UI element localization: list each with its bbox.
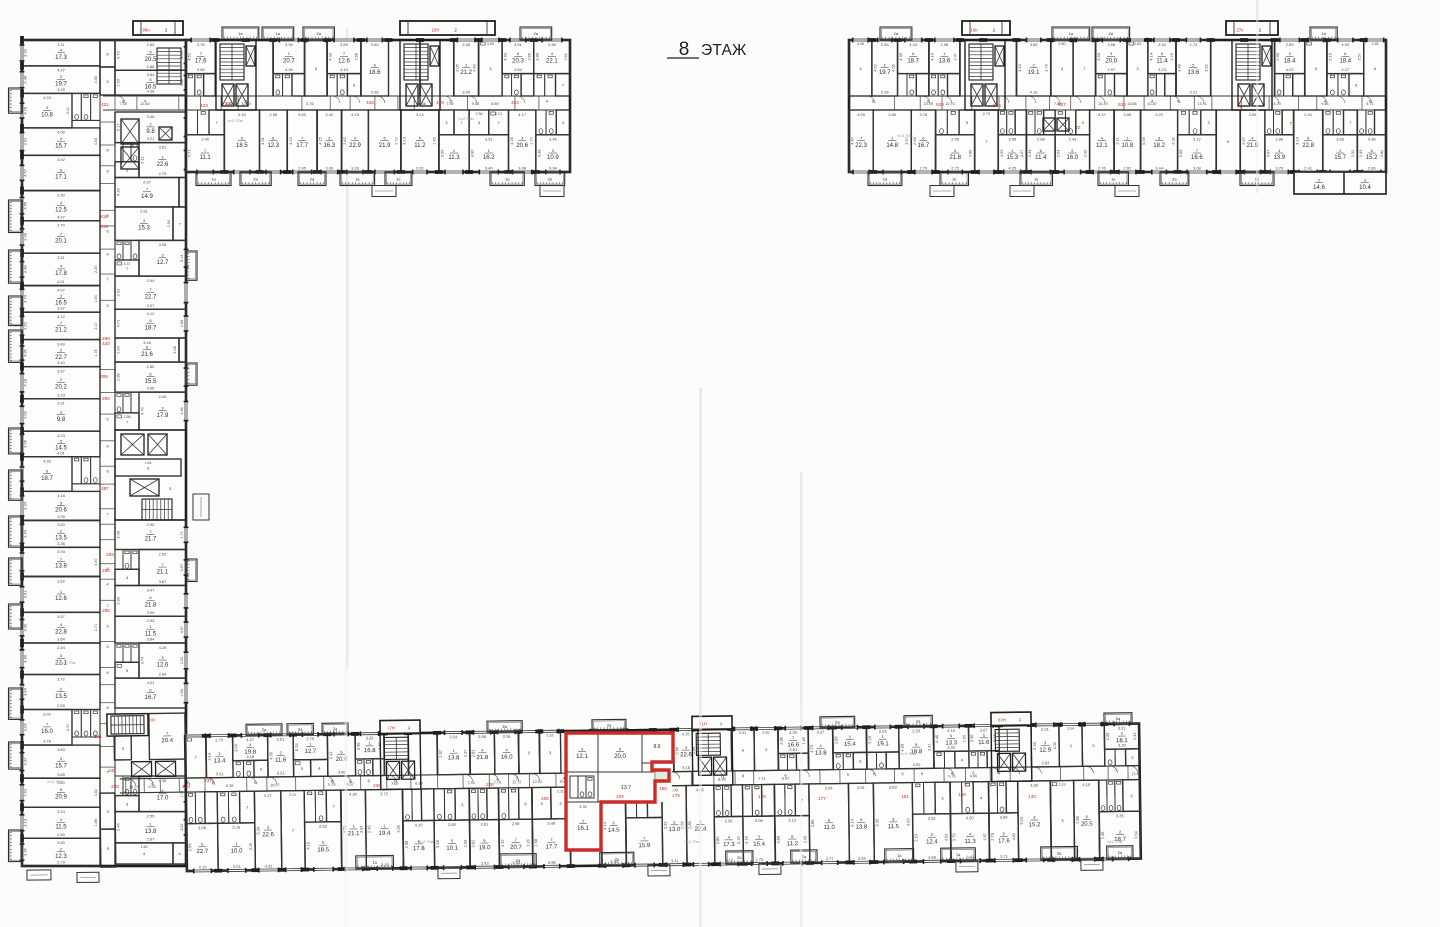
svg-text:3.54: 3.54 — [449, 734, 458, 739]
svg-text:77Н: 77Н — [387, 725, 395, 730]
svg-text:4.80: 4.80 — [472, 64, 476, 71]
svg-text:4.12: 4.12 — [500, 839, 505, 848]
svg-text:3.18: 3.18 — [143, 340, 152, 345]
svg-text:13.66: 13.66 — [1127, 102, 1137, 106]
svg-text:288: 288 — [102, 336, 110, 341]
svg-text:5.15: 5.15 — [1019, 816, 1024, 825]
svg-text:3.50: 3.50 — [57, 840, 66, 845]
svg-text:2.98: 2.98 — [371, 90, 380, 95]
svg-text:3.40: 3.40 — [485, 166, 494, 171]
svg-text:4.67: 4.67 — [1266, 149, 1271, 158]
svg-text:3.23: 3.23 — [57, 392, 66, 397]
svg-text:21.7: 21.7 — [145, 537, 157, 543]
svg-text:7: 7 — [562, 84, 564, 88]
svg-text:4.96: 4.96 — [180, 407, 184, 414]
svg-text:4.06: 4.06 — [173, 346, 177, 353]
svg-text:2.47: 2.47 — [66, 724, 70, 731]
svg-text:70: 70 — [1237, 104, 1243, 109]
svg-text:5: 5 — [106, 418, 108, 422]
svg-text:11.6: 11.6 — [978, 740, 990, 746]
svg-text:3.49: 3.49 — [57, 341, 66, 346]
svg-text:3.43: 3.43 — [238, 112, 247, 117]
svg-text:4.38: 4.38 — [1368, 137, 1377, 142]
svg-text:3.46: 3.46 — [147, 114, 156, 119]
svg-text:12.52: 12.52 — [533, 780, 543, 784]
svg-text:17.0: 17.0 — [157, 796, 169, 802]
svg-text:2.46: 2.46 — [201, 137, 210, 142]
svg-text:11.2: 11.2 — [787, 841, 799, 847]
svg-text:3.59: 3.59 — [1249, 112, 1258, 117]
svg-text:10.8: 10.8 — [1122, 143, 1134, 149]
svg-text:3.38: 3.38 — [1030, 783, 1039, 788]
svg-text:3.84: 3.84 — [147, 637, 156, 642]
svg-text:3.08: 3.08 — [518, 166, 527, 171]
svg-text:3.71: 3.71 — [1000, 854, 1009, 859]
svg-text:3.08: 3.08 — [1193, 166, 1202, 171]
svg-text:10.8: 10.8 — [41, 113, 53, 119]
svg-text:10.29: 10.29 — [1098, 102, 1108, 106]
svg-text:3.57: 3.57 — [1358, 53, 1362, 60]
svg-text:21.9: 21.9 — [379, 143, 391, 149]
svg-text:3.07: 3.07 — [147, 303, 156, 308]
svg-text:16н: 16н — [971, 28, 979, 33]
svg-text:3.11: 3.11 — [57, 42, 65, 47]
svg-text:2.80: 2.80 — [687, 820, 692, 829]
svg-text:422: 422 — [225, 101, 233, 106]
svg-text:6.39: 6.39 — [226, 784, 233, 788]
svg-text:22.9: 22.9 — [349, 143, 361, 149]
svg-text:12.7: 12.7 — [305, 749, 317, 755]
svg-text:4.87: 4.87 — [94, 558, 98, 565]
svg-text:3.09: 3.09 — [116, 530, 121, 539]
svg-text:6: 6 — [106, 671, 108, 675]
svg-text:5: 5 — [106, 645, 108, 649]
svg-text:2.54: 2.54 — [1067, 727, 1074, 731]
svg-text:4.95: 4.95 — [268, 751, 273, 760]
svg-text:2а: 2а — [1109, 31, 1114, 36]
svg-text:3.44: 3.44 — [1027, 149, 1032, 158]
svg-text:16.7: 16.7 — [918, 143, 930, 149]
svg-text:9.58: 9.58 — [472, 102, 479, 106]
svg-text:4: 4 — [107, 810, 109, 814]
svg-text:426: 426 — [436, 100, 444, 105]
svg-text:15.3: 15.3 — [138, 226, 150, 232]
svg-text:4.17: 4.17 — [264, 793, 273, 798]
svg-text:3.02: 3.02 — [43, 711, 52, 716]
svg-text:2.37: 2.37 — [464, 750, 468, 757]
svg-text:6: 6 — [524, 802, 526, 806]
svg-text:2.02: 2.02 — [180, 657, 184, 664]
svg-text:5: 5 — [106, 625, 108, 629]
svg-text:4: 4 — [980, 796, 982, 800]
svg-text:22.8: 22.8 — [1302, 143, 1314, 149]
svg-text:2.88: 2.88 — [147, 64, 156, 69]
svg-text:290: 290 — [102, 396, 110, 401]
svg-text:8.9: 8.9 — [654, 744, 661, 750]
svg-text:2.52: 2.52 — [928, 816, 937, 821]
svg-text:4.12: 4.12 — [147, 311, 156, 316]
svg-text:4: 4 — [1151, 100, 1153, 104]
svg-text:4.15: 4.15 — [682, 731, 691, 736]
svg-text:6: 6 — [784, 774, 786, 778]
svg-text:2.96: 2.96 — [881, 90, 890, 95]
svg-text:2.80: 2.80 — [1059, 42, 1066, 46]
svg-text:10Н: 10Н — [432, 28, 440, 33]
svg-text:2.46: 2.46 — [116, 823, 121, 832]
svg-text:2.62: 2.62 — [1124, 166, 1133, 171]
svg-text:3.12: 3.12 — [1193, 137, 1202, 142]
svg-text:2.89: 2.89 — [116, 596, 121, 605]
svg-text:11.1: 11.1 — [199, 155, 211, 161]
svg-text:2.80: 2.80 — [147, 364, 156, 369]
svg-text:2.79: 2.79 — [215, 737, 224, 742]
svg-text:7: 7 — [292, 829, 294, 833]
svg-text:3.94: 3.94 — [825, 785, 834, 790]
svg-text:241: 241 — [94, 734, 102, 739]
svg-text:150: 150 — [958, 792, 966, 797]
svg-text:4: 4 — [260, 767, 262, 771]
svg-text:16.8: 16.8 — [364, 748, 376, 754]
svg-text:h=2.70м: h=2.70м — [418, 839, 433, 844]
svg-text:4.56: 4.56 — [891, 64, 895, 71]
svg-text:2.14: 2.14 — [289, 793, 296, 797]
svg-text:4.51: 4.51 — [187, 52, 192, 61]
svg-text:2.55: 2.55 — [147, 813, 156, 818]
svg-text:424: 424 — [511, 100, 519, 105]
svg-text:22.6: 22.6 — [157, 162, 169, 168]
svg-text:3.54: 3.54 — [147, 72, 156, 77]
svg-text:11.5: 11.5 — [888, 824, 900, 830]
svg-text:3: 3 — [489, 67, 491, 71]
svg-text:11.3: 11.3 — [448, 155, 460, 161]
svg-text:16.0: 16.0 — [41, 729, 53, 735]
svg-text:ЭТАЖ: ЭТАЖ — [701, 42, 747, 59]
svg-text:3: 3 — [1070, 744, 1072, 748]
svg-text:6: 6 — [921, 772, 923, 776]
svg-text:140: 140 — [1028, 794, 1036, 799]
svg-text:3.66: 3.66 — [1030, 42, 1039, 47]
svg-text:3.41: 3.41 — [671, 858, 680, 863]
svg-text:2.65: 2.65 — [147, 42, 156, 47]
svg-text:1.78: 1.78 — [94, 349, 98, 356]
svg-text:8: 8 — [742, 774, 744, 778]
svg-text:18.6: 18.6 — [369, 70, 381, 76]
svg-text:3.99: 3.99 — [1000, 815, 1009, 820]
svg-text:2.42: 2.42 — [1158, 42, 1167, 47]
svg-text:13.4: 13.4 — [214, 758, 226, 764]
svg-text:2а: 2а — [1172, 176, 1177, 181]
svg-text:3.23: 3.23 — [1158, 67, 1167, 72]
svg-text:4.79: 4.79 — [140, 406, 145, 415]
svg-text:4.15: 4.15 — [351, 112, 360, 117]
svg-text:2.52: 2.52 — [159, 551, 168, 556]
svg-text:3.76: 3.76 — [1275, 166, 1284, 171]
svg-text:4.28: 4.28 — [159, 645, 168, 650]
svg-text:4.02: 4.02 — [94, 789, 98, 796]
svg-text:5: 5 — [1092, 744, 1094, 748]
svg-text:7: 7 — [1083, 67, 1085, 71]
svg-text:3.14: 3.14 — [416, 112, 425, 117]
svg-text:12.1: 12.1 — [576, 754, 588, 760]
svg-text:528: 528 — [993, 103, 1001, 108]
svg-text:3.09: 3.09 — [325, 166, 334, 171]
svg-text:1.87: 1.87 — [983, 833, 987, 840]
svg-text:4.23: 4.23 — [57, 433, 66, 438]
svg-text:3.35: 3.35 — [1116, 813, 1125, 818]
svg-text:4.00: 4.00 — [94, 76, 98, 83]
svg-text:3.01: 3.01 — [233, 864, 242, 869]
svg-text:3.45: 3.45 — [549, 137, 558, 142]
svg-text:240: 240 — [108, 768, 116, 773]
svg-text:19.7: 19.7 — [879, 70, 891, 76]
svg-text:1а: 1а — [1321, 31, 1326, 36]
svg-text:1а: 1а — [1069, 31, 1074, 36]
svg-text:2: 2 — [454, 28, 457, 33]
svg-text:4.02: 4.02 — [1286, 67, 1295, 72]
svg-text:5: 5 — [847, 773, 849, 777]
svg-text:3.19: 3.19 — [1017, 63, 1022, 72]
svg-text:2.67: 2.67 — [1241, 136, 1246, 145]
svg-text:3.30: 3.30 — [579, 805, 586, 809]
svg-text:1е: 1е — [1034, 176, 1039, 181]
svg-text:3.37: 3.37 — [124, 262, 131, 266]
svg-text:20.3: 20.3 — [512, 59, 524, 65]
svg-text:4.45: 4.45 — [934, 734, 939, 743]
svg-text:17.3: 17.3 — [55, 55, 67, 61]
svg-text:286: 286 — [102, 568, 110, 573]
svg-text:7: 7 — [516, 777, 518, 781]
svg-text:2.50: 2.50 — [57, 832, 66, 837]
svg-text:20.6: 20.6 — [516, 143, 528, 149]
svg-text:3.11: 3.11 — [1115, 136, 1120, 144]
svg-text:14.6: 14.6 — [1313, 185, 1325, 191]
svg-text:3.29: 3.29 — [57, 87, 66, 92]
svg-text:13.6: 13.6 — [939, 59, 951, 65]
svg-text:5: 5 — [528, 751, 530, 755]
svg-text:1.86: 1.86 — [94, 819, 98, 826]
svg-text:4: 4 — [143, 852, 145, 856]
svg-text:2.95: 2.95 — [951, 137, 960, 142]
svg-text:4.52: 4.52 — [873, 63, 878, 72]
svg-text:7: 7 — [178, 223, 180, 227]
svg-text:9бн: 9бн — [142, 28, 150, 33]
svg-text:4.96: 4.96 — [898, 52, 903, 61]
svg-text:3.99: 3.99 — [57, 514, 66, 519]
svg-text:4.33: 4.33 — [43, 95, 52, 100]
svg-text:3.85: 3.85 — [57, 772, 66, 777]
svg-text:5.08: 5.08 — [1178, 149, 1183, 158]
svg-text:2.72: 2.72 — [951, 166, 960, 171]
svg-text:1.66: 1.66 — [180, 689, 184, 696]
svg-text:2.97: 2.97 — [143, 179, 152, 184]
svg-text:17.7: 17.7 — [296, 143, 308, 149]
svg-text:4.24: 4.24 — [909, 42, 918, 47]
svg-text:2.54: 2.54 — [57, 645, 66, 650]
svg-text:2.79: 2.79 — [920, 166, 929, 171]
svg-text:4.32: 4.32 — [1053, 742, 1057, 749]
svg-text:2.56: 2.56 — [763, 731, 770, 735]
svg-text:3.83: 3.83 — [57, 747, 66, 752]
svg-text:18.5: 18.5 — [236, 143, 248, 149]
svg-text:3.34: 3.34 — [549, 166, 558, 171]
svg-text:10.70: 10.70 — [945, 102, 955, 106]
svg-text:4.07: 4.07 — [57, 287, 66, 292]
svg-text:2.32: 2.32 — [546, 733, 553, 737]
svg-text:4.17: 4.17 — [518, 112, 527, 117]
svg-text:238: 238 — [182, 784, 190, 789]
svg-text:5: 5 — [126, 669, 128, 673]
svg-text:1а: 1а — [276, 31, 281, 36]
svg-text:11.0: 11.0 — [824, 825, 836, 831]
svg-text:22.7: 22.7 — [145, 294, 157, 300]
svg-text:3.19: 3.19 — [381, 862, 390, 867]
svg-text:2а: 2а — [253, 176, 258, 181]
svg-text:3.19: 3.19 — [249, 843, 253, 850]
svg-text:1.98: 1.98 — [1371, 42, 1378, 46]
svg-text:h=2.70м: h=2.70м — [227, 118, 242, 123]
svg-text:13.91: 13.91 — [1198, 102, 1208, 106]
svg-text:419: 419 — [100, 224, 108, 229]
svg-text:1а: 1а — [238, 31, 243, 36]
svg-text:2.98: 2.98 — [404, 840, 409, 849]
svg-text:2.85: 2.85 — [833, 735, 838, 744]
svg-text:3.94: 3.94 — [360, 826, 364, 833]
svg-text:285: 285 — [102, 608, 110, 613]
svg-text:3.16: 3.16 — [744, 835, 749, 844]
svg-text:3: 3 — [461, 803, 463, 807]
svg-text:4: 4 — [144, 100, 146, 104]
svg-text:1.94: 1.94 — [94, 295, 98, 302]
svg-text:2.11: 2.11 — [557, 789, 564, 793]
svg-text:3.72: 3.72 — [380, 791, 389, 796]
svg-text:12.1: 12.1 — [1096, 143, 1108, 149]
svg-text:2.86: 2.86 — [779, 736, 784, 745]
svg-text:13.6: 13.6 — [1188, 70, 1200, 76]
svg-text:3.06: 3.06 — [755, 818, 764, 823]
svg-text:14.5: 14.5 — [608, 828, 620, 834]
svg-text:2.56: 2.56 — [187, 843, 192, 852]
svg-text:13.8: 13.8 — [815, 750, 827, 756]
svg-text:2.61: 2.61 — [789, 747, 798, 752]
svg-text:3.09: 3.09 — [233, 743, 238, 752]
svg-text:5: 5 — [1131, 756, 1133, 760]
svg-text:3.60: 3.60 — [371, 42, 380, 47]
svg-text:2.93: 2.93 — [858, 856, 867, 861]
svg-text:12.6: 12.6 — [338, 59, 350, 65]
svg-text:151: 151 — [901, 794, 909, 799]
svg-text:6: 6 — [106, 230, 108, 234]
svg-text:7: 7 — [498, 121, 500, 125]
svg-text:15.7: 15.7 — [55, 763, 67, 769]
svg-text:5.14: 5.14 — [180, 255, 184, 262]
svg-text:20.5: 20.5 — [1081, 822, 1093, 828]
svg-text:1а: 1а — [505, 176, 510, 181]
svg-text:2а: 2а — [894, 31, 899, 36]
svg-text:4: 4 — [122, 747, 124, 751]
svg-text:21.1: 21.1 — [157, 569, 169, 575]
svg-text:2.84: 2.84 — [881, 42, 890, 47]
svg-text:4.25: 4.25 — [509, 136, 514, 145]
svg-text:4.27: 4.27 — [57, 214, 66, 219]
svg-text:20.6: 20.6 — [55, 508, 67, 514]
svg-text:3.65: 3.65 — [528, 53, 532, 60]
svg-text:21.6: 21.6 — [141, 352, 153, 358]
svg-text:5: 5 — [106, 80, 108, 84]
svg-text:3.45: 3.45 — [462, 42, 471, 47]
svg-text:10.9: 10.9 — [547, 155, 559, 161]
svg-text:4.01: 4.01 — [57, 279, 66, 284]
svg-text:239: 239 — [111, 784, 119, 789]
svg-text:14.8: 14.8 — [886, 143, 898, 149]
svg-text:72: 72 — [1075, 125, 1081, 130]
svg-text:3.40: 3.40 — [57, 360, 66, 365]
svg-text:2.90: 2.90 — [57, 192, 66, 197]
svg-text:2.56: 2.56 — [674, 746, 679, 755]
svg-text:4.73: 4.73 — [809, 744, 814, 753]
svg-text:4: 4 — [178, 852, 180, 856]
svg-text:2.72: 2.72 — [395, 137, 399, 144]
svg-text:13.0: 13.0 — [669, 827, 681, 833]
svg-text:3.12: 3.12 — [725, 858, 734, 863]
svg-text:3.41: 3.41 — [1133, 733, 1137, 740]
svg-text:1.71: 1.71 — [180, 790, 184, 797]
svg-text:17.6: 17.6 — [998, 838, 1010, 844]
svg-text:3.57: 3.57 — [57, 614, 66, 619]
svg-text:2.41: 2.41 — [1304, 166, 1313, 171]
svg-text:11.4: 11.4 — [1156, 59, 1168, 65]
svg-text:205: 205 — [541, 796, 549, 801]
svg-text:2.79: 2.79 — [983, 112, 990, 116]
svg-text:418: 418 — [100, 214, 108, 219]
svg-text:2.86: 2.86 — [1275, 137, 1284, 142]
svg-text:2.79: 2.79 — [990, 832, 995, 841]
svg-text:18.7: 18.7 — [41, 476, 53, 482]
svg-text:4.12: 4.12 — [947, 728, 956, 733]
svg-text:2.66: 2.66 — [478, 734, 487, 739]
svg-text:6: 6 — [353, 84, 355, 88]
svg-text:15.2: 15.2 — [1029, 822, 1041, 828]
svg-text:4.14: 4.14 — [1149, 52, 1154, 61]
svg-text:7: 7 — [126, 420, 128, 424]
svg-text:3.57: 3.57 — [1020, 150, 1024, 157]
svg-text:5: 5 — [966, 121, 968, 125]
svg-text:3.21: 3.21 — [1118, 726, 1127, 731]
svg-text:h=2.70м: h=2.70м — [60, 660, 75, 665]
svg-text:2.79: 2.79 — [57, 860, 66, 865]
svg-text:4.20: 4.20 — [349, 792, 358, 797]
svg-text:2.41: 2.41 — [328, 750, 333, 759]
svg-text:17.6: 17.6 — [195, 59, 207, 65]
svg-text:22.1: 22.1 — [546, 59, 558, 65]
svg-text:3.05: 3.05 — [454, 63, 459, 72]
svg-text:71: 71 — [1289, 121, 1295, 126]
svg-text:3: 3 — [1207, 121, 1209, 125]
svg-text:5: 5 — [315, 67, 317, 71]
svg-text:18.5: 18.5 — [317, 847, 329, 853]
svg-text:16.1: 16.1 — [577, 826, 589, 832]
svg-text:3.06: 3.06 — [147, 386, 156, 391]
svg-text:11.3: 11.3 — [964, 839, 976, 845]
svg-text:2.47: 2.47 — [954, 53, 958, 60]
svg-text:4.03: 4.03 — [328, 52, 333, 61]
svg-text:2.77: 2.77 — [826, 856, 835, 861]
svg-text:15.9: 15.9 — [638, 843, 650, 849]
svg-text:2.76: 2.76 — [1098, 166, 1107, 171]
svg-text:22.3: 22.3 — [855, 143, 867, 149]
svg-text:4.18: 4.18 — [246, 754, 255, 759]
svg-text:7: 7 — [216, 121, 218, 125]
svg-text:3.79: 3.79 — [951, 833, 956, 842]
